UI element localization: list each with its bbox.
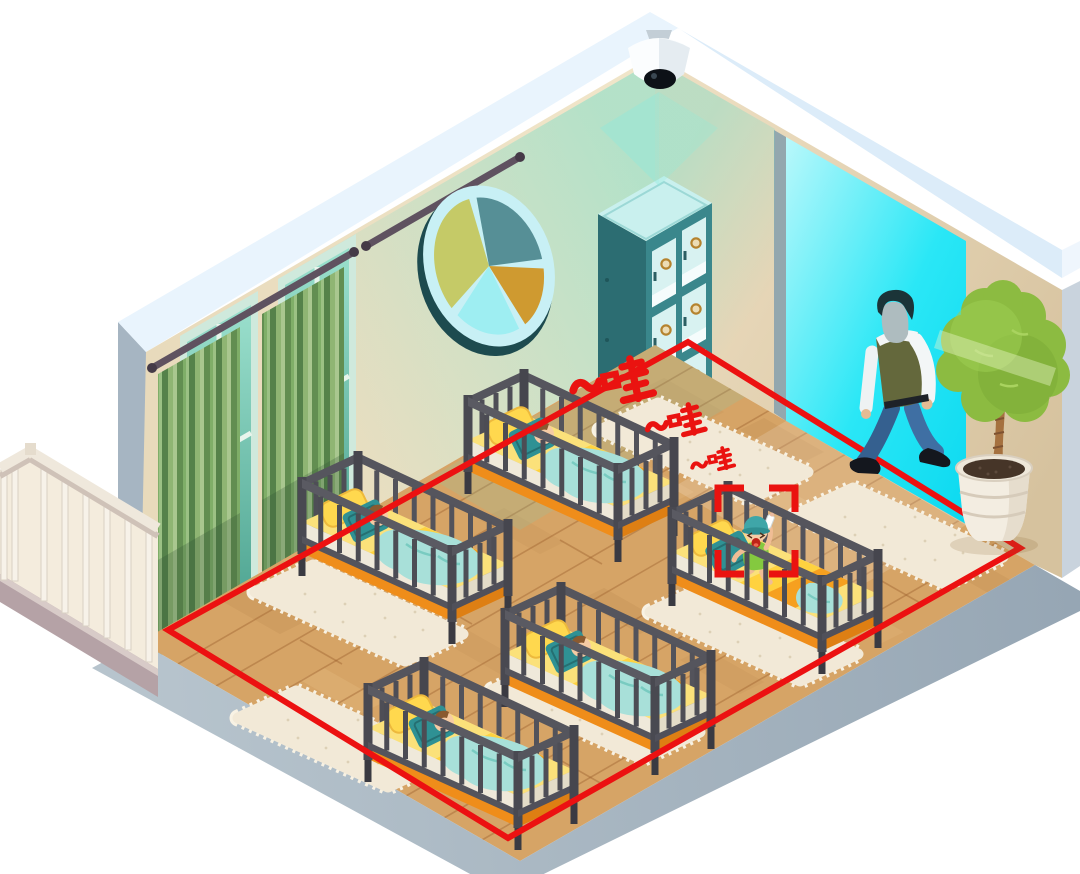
doorway-jamb: [774, 130, 786, 421]
plant-pot: [956, 455, 1032, 541]
nursery-monitoring-illustration: ~哇~哇~哇: [0, 0, 1080, 874]
isometric-nursery-scene: [0, 0, 1080, 874]
right-wall-end-face: [1062, 281, 1080, 578]
caregiver-face: [882, 302, 909, 343]
wall-top-band-end: [1062, 241, 1080, 278]
camera-lens: [644, 69, 676, 89]
